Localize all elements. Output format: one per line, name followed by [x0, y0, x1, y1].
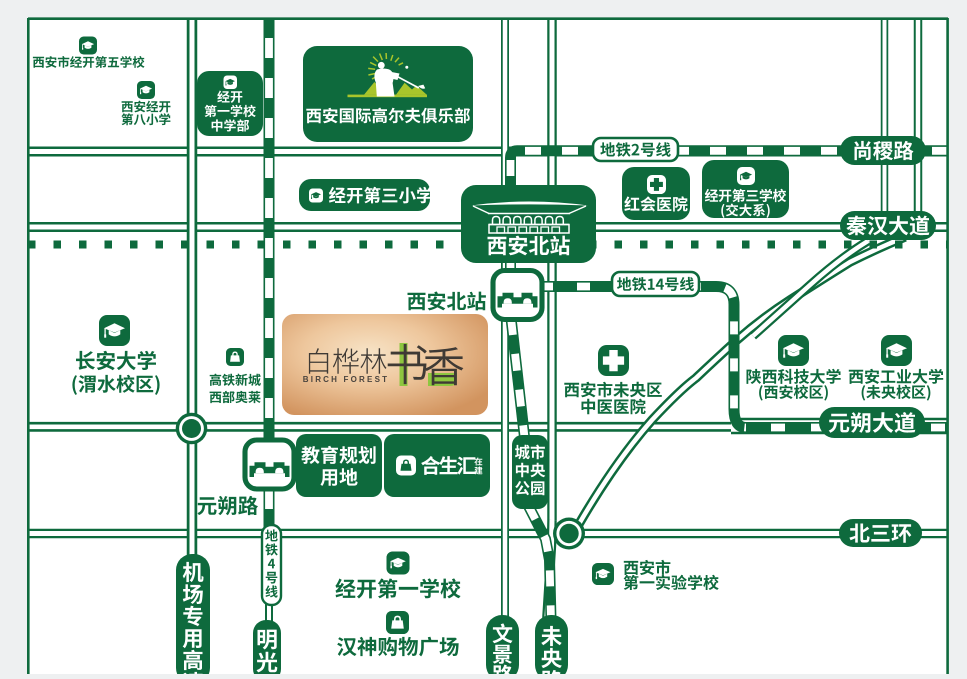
svg-text:BIRCH FOREST: BIRCH FOREST: [303, 375, 389, 384]
